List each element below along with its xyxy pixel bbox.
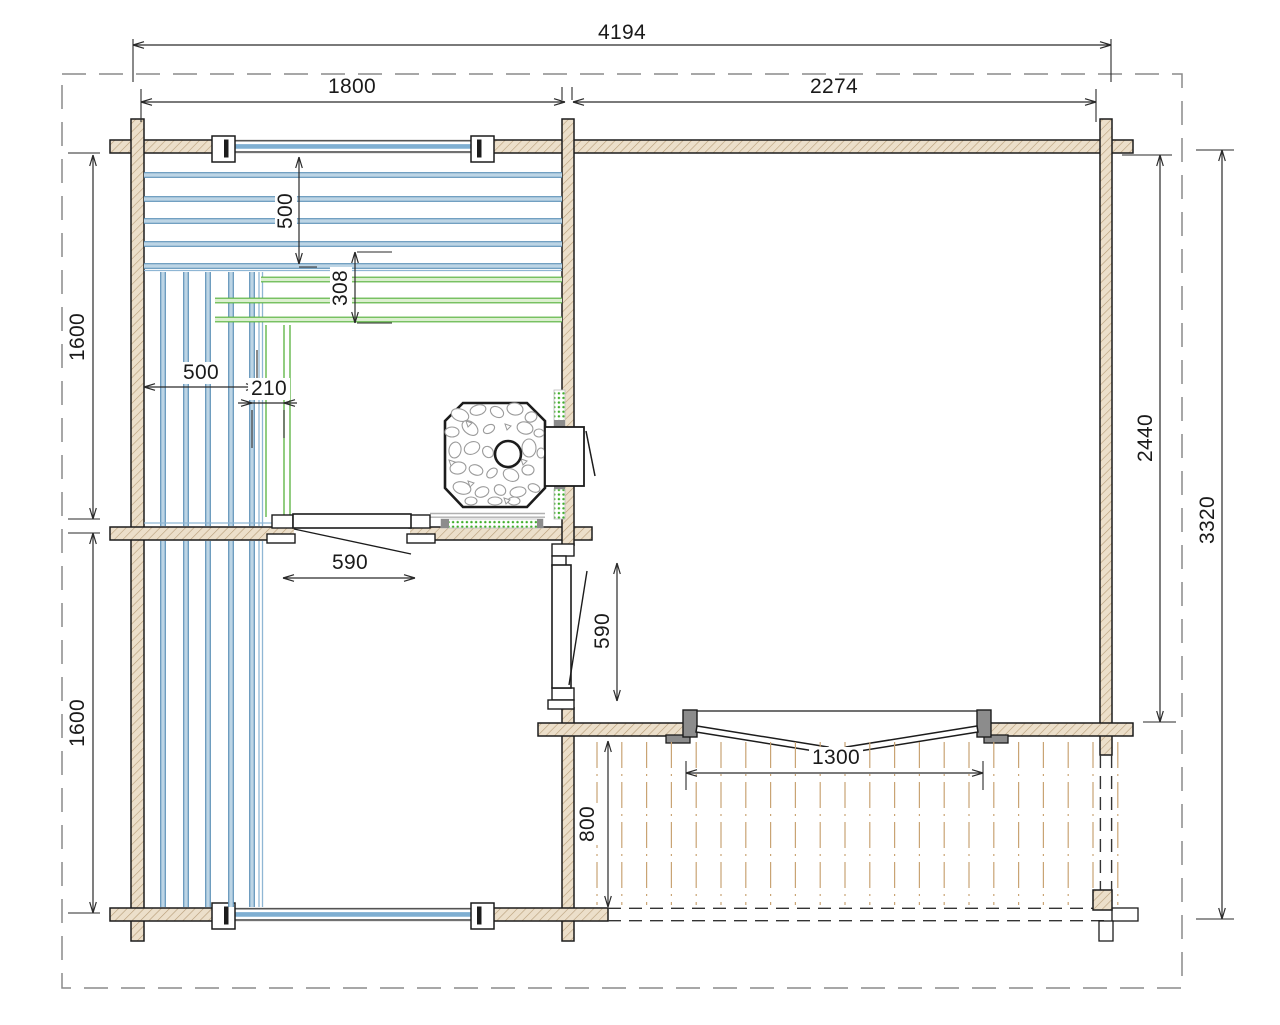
floor-plan-drawing	[0, 0, 1280, 1025]
passage-door	[548, 544, 587, 709]
rear-room-slats	[161, 541, 263, 907]
terrace-edges	[608, 755, 1138, 941]
floor-plan: 4194 1800 2274 1600 1600 2440 3320 500 3…	[0, 0, 1280, 1025]
dim-main-room-depth-label: 2440	[1135, 411, 1157, 465]
dim-sauna-depth-label: 1600	[67, 310, 89, 364]
dim-rear-room-depth-label: 1600	[67, 696, 89, 750]
dim-main-room-width-label: 2274	[807, 76, 861, 98]
dimension-lines	[68, 39, 1234, 919]
dim-sauna-section-label: 1800	[325, 76, 379, 98]
window-top	[212, 136, 494, 162]
dim-passage-door-label: 590	[592, 610, 614, 652]
dim-lower-bench-label: 308	[330, 267, 352, 309]
dim-terrace-depth-label: 800	[577, 803, 599, 845]
dim-overall-width-label: 4194	[595, 22, 649, 44]
dim-bench-step-label: 210	[248, 378, 290, 400]
dim-side-bench-label: 500	[180, 362, 222, 384]
dim-upper-bench-label: 500	[275, 190, 297, 232]
dim-sauna-door-label: 590	[329, 552, 371, 574]
dim-terrace-door-label: 1300	[809, 747, 863, 769]
door-openings	[294, 526, 977, 737]
upper-bench-slats	[144, 173, 562, 271]
dim-overall-depth-label: 3320	[1197, 493, 1219, 547]
